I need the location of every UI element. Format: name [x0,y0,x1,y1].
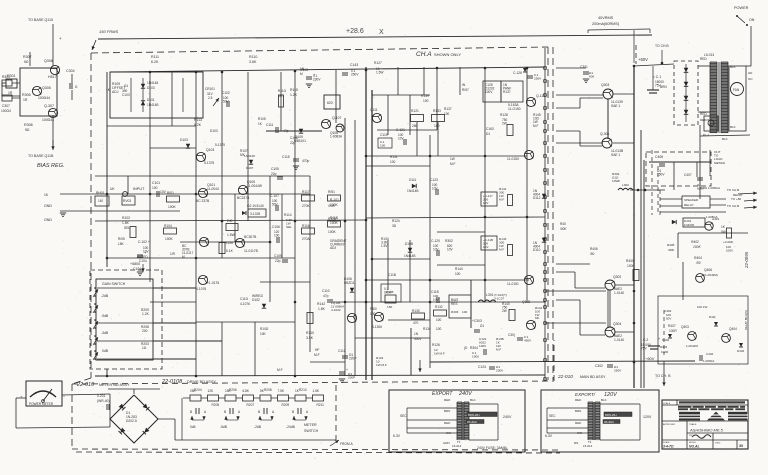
svg-text:100V: 100V [726,248,733,252]
svg-text:C111: C111 [266,123,274,127]
svg-text:R121: R121 [411,109,419,113]
svg-text:100K: 100K [627,264,636,268]
svg-text:Q403: Q403 [681,325,689,329]
svg-text:(1-0049M): (1-0049M) [704,273,718,277]
svg-text:POWER: POWER [734,6,749,10]
svg-text:G2 1V4140: G2 1V4140 [247,204,264,208]
svg-text:230V: 230V [313,78,321,82]
svg-text:100K: 100K [165,237,174,241]
svg-text:EXPORT/: EXPORT/ [575,392,596,397]
svg-text:-24dB: -24dB [286,425,296,429]
svg-text:WH-BLK: WH-BLK [604,420,614,424]
svg-text:10V: 10V [447,248,454,252]
svg-text:RED: RED [700,57,707,61]
svg-text:1W: 1W [450,157,455,161]
svg-text:D112: D112 [533,196,541,200]
svg-text:R126: R126 [432,343,440,347]
svg-text:470p: 470p [302,159,310,163]
svg-text:L301: L301 [486,293,494,297]
svg-text:R405: R405 [667,243,675,247]
svg-text:D101: D101 [147,98,155,102]
svg-text:R407: R407 [668,324,676,328]
svg-text:100K: 100K [328,230,337,234]
svg-text:RED: RED [444,421,451,425]
svg-text:BRN-WH: BRN-WH [605,413,617,417]
svg-text:10V: 10V [483,245,488,249]
svg-text:R132: R132 [435,305,443,309]
svg-text:HF: HF [315,348,319,352]
svg-text:220P: 220P [349,357,356,361]
svg-text:240V FUSE: 3AM6L: 240V FUSE: 3AM6L [477,446,508,450]
svg-text:WH-BLK: WH-BLK [467,420,477,424]
svg-text:R30/: R30/ [370,307,377,311]
svg-text:C304: C304 [66,69,75,73]
svg-text:Q11B: Q11B [522,300,531,304]
svg-text:1N4148: 1N4148 [244,154,255,158]
svg-text:R131: R131 [390,155,398,159]
svg-text:11-0044W: 11-0044W [247,184,263,188]
svg-text:R402: R402 [691,240,699,244]
svg-text:ASHISHIMO MK.5: ASHISHIMO MK.5 [689,428,724,433]
svg-text:C102: C102 [222,91,230,95]
svg-text:4-1076: 4-1076 [196,287,206,291]
svg-text:R110: R110 [249,55,257,59]
svg-text:R11Ω: R11Ω [278,89,287,93]
svg-text:RELAY BD A(S): RELAY BD A(S) [744,310,748,330]
svg-text:450V: 450V [524,339,532,343]
svg-text:Q-113: Q-113 [536,94,545,98]
svg-text:10V: 10V [433,298,439,302]
svg-text:1.8K: 1.8K [318,307,326,311]
svg-text:BLK: BLK [470,398,476,402]
svg-text:Q302: Q302 [613,275,621,279]
svg-text:10WF: 10WF [612,179,620,183]
svg-text:1000: 1000 [472,355,479,359]
svg-text:150: 150 [387,305,392,309]
svg-text:DRIVE BD ASSY.: DRIVE BD ASSY. [187,380,216,384]
svg-text:M.F: M.F [533,124,539,128]
svg-text:BRN-WH: BRN-WH [468,413,480,417]
svg-text:+60V: +60V [638,57,648,62]
svg-text:4-1076: 4-1076 [240,302,250,306]
svg-text:H517: H517 [48,75,57,79]
svg-text:B: B [292,410,294,414]
svg-text:RES: RES [451,302,458,306]
svg-text:100: 100 [434,124,440,128]
svg-text:EXPORT: EXPORT [432,391,453,397]
svg-text:50V: 50V [666,316,671,320]
svg-text:B: B [224,410,226,414]
svg-text:M: M [182,255,185,259]
svg-text:-9dB: -9dB [101,314,109,318]
svg-text:TO CH. B: TO CH. B [655,374,671,378]
svg-text:BIAS REG.: BIAS REG. [37,163,65,169]
svg-text:RED: RED [575,398,582,402]
svg-text:(WR-40): (WR-40) [97,399,109,403]
svg-text:250V: 250V [614,369,622,373]
svg-text:R130: R130 [412,309,420,313]
svg-text:DWG: DWG [715,443,721,445]
svg-text:22p: 22p [271,172,277,176]
svg-text:1N414B: 1N414B [404,254,416,258]
svg-text:D103: D103 [210,129,218,133]
svg-text:100V: 100V [485,90,493,94]
svg-text:Ω: Ω [75,85,78,89]
svg-text:R400: R400 [626,259,634,263]
svg-text:Ω1: Ω1 [124,84,128,88]
svg-text:A: A [709,122,711,126]
svg-text:R205: R205 [212,403,220,407]
svg-text:240V: 240V [503,415,512,419]
svg-text:250V: 250V [534,77,542,81]
svg-text:RELAY: RELAY [684,203,694,207]
svg-text:47p: 47p [323,294,329,298]
svg-text:100: 100 [380,144,385,148]
svg-text:HD: HD [748,71,753,75]
svg-text:6.2K: 6.2K [151,60,159,64]
svg-text:C143: C143 [350,63,358,67]
svg-text:C404: C404 [706,352,714,356]
svg-text:Ω1: Ω1 [486,132,490,136]
svg-text:R106: R106 [225,241,233,245]
svg-text:R134: R134 [423,327,431,331]
svg-text:Ω1: Ω1 [480,324,484,328]
svg-text:5Ω: 5Ω [24,60,29,64]
svg-text:22-0095: 22-0095 [744,251,749,269]
svg-text:1K: 1K [258,122,263,126]
svg-text:100R: 100R [661,350,669,354]
svg-text:+28.6: +28.6 [346,28,364,35]
svg-text:R308: R308 [24,123,33,127]
svg-text:FAN: FAN [733,88,740,92]
svg-text:4-1022: 4-1022 [331,308,341,312]
svg-text:1-0140: 1-0140 [614,291,624,295]
svg-text:5-1306: 5-1306 [372,325,382,329]
svg-text:TRADE: TRADE [689,423,697,426]
svg-text:3Ω: 3Ω [392,224,397,228]
svg-text:U5ZD1: U5ZD1 [344,281,355,285]
svg-text:SEC: SEC [400,414,407,418]
svg-text:X: X [379,29,384,36]
svg-text:R211: R211 [317,403,325,407]
svg-text:1-0083A: 1-0083A [330,135,343,139]
svg-text:SHOWN ONLY: SHOWN ONLY [434,52,461,57]
svg-text:≈ C.1: ≈ C.1 [653,75,661,79]
svg-text:BC307B: BC307B [244,235,257,239]
svg-text:270A: 270A [302,237,311,241]
svg-text:B: B [190,410,192,414]
svg-text:R304: R304 [470,346,478,350]
svg-text:RED: RED [575,421,582,425]
svg-text:Q305: Q305 [42,86,51,90]
svg-text:C103: C103 [122,93,130,97]
svg-text:M.F: M.F [450,162,456,166]
svg-text:R124: R124 [392,219,400,223]
svg-text:-3dB: -3dB [101,331,109,335]
svg-text:IN: IN [462,83,466,87]
svg-text:UK: UK [110,187,115,191]
svg-text:3.6K: 3.6K [249,60,257,64]
svg-text:+: + [59,36,62,41]
svg-text:M.F: M.F [499,198,504,202]
svg-text:C119: C119 [380,133,388,137]
svg-text:6.3V: 6.3V [393,434,401,438]
svg-text:A: A [238,410,241,414]
svg-text:GND: GND [44,218,52,222]
svg-text:C-120: C-120 [431,239,440,243]
svg-text:22-0108: 22-0108 [161,379,183,385]
svg-text:2.5: 2.5 [208,96,213,100]
svg-text:C-102 +: C-102 + [138,240,150,244]
svg-text:SEL: SEL [286,225,292,229]
svg-text:2W: 2W [502,309,507,313]
svg-text:C163: C163 [486,127,494,131]
svg-text:100K: 100K [330,221,339,225]
svg-text:100Ω44: 100Ω44 [38,96,50,100]
svg-text:1N4006: 1N4006 [684,223,695,227]
svg-text:SCALE: SCALE [663,402,671,405]
svg-text:100K: 100K [693,245,702,249]
svg-text:120V: 120V [643,415,652,419]
svg-text:A: A [306,410,309,414]
svg-text:M.F: M.F [314,353,320,357]
svg-text:-2dB: -2dB [254,425,262,429]
svg-text:RV03: RV03 [123,199,131,203]
svg-text:R303: R303 [451,310,459,314]
svg-text:Q406: Q406 [704,268,712,272]
svg-text:R115: R115 [290,88,298,92]
svg-text:BRN: BRN [444,409,450,413]
svg-text:1-0044M: 1-0044M [686,344,698,348]
svg-text:Q-107: Q-107 [332,116,342,120]
svg-text:1K: 1K [44,193,49,197]
svg-text:R/57: R/57 [462,88,469,92]
svg-text:GRN: GRN [443,441,450,445]
svg-text:12K: 12K [208,389,215,393]
svg-text:230V: 230V [496,369,504,373]
svg-text:7.5K: 7.5K [278,389,285,393]
svg-text:NO: NO [748,77,753,81]
svg-text:RH01: RH01 [96,191,105,195]
svg-text:22-010: 22-010 [557,374,573,380]
svg-text:150 FRMS: 150 FRMS [99,29,118,34]
svg-text:100: 100 [444,112,450,116]
svg-text:R304: R304 [2,75,10,79]
svg-text:6.8K: 6.8K [243,389,250,393]
svg-text:R209: R209 [282,403,290,407]
svg-text:R204: R204 [194,388,202,392]
svg-text:D107: D107 [246,166,254,170]
svg-text:R137: R137 [444,107,452,111]
svg-text:C30(: C30( [508,333,516,337]
svg-text:(D: (D [464,346,468,350]
svg-text:M.F: M.F [499,248,504,252]
svg-text:3-1025: 3-1025 [250,212,260,216]
svg-text:C302: C302 [595,364,603,368]
svg-text:M: M [300,72,303,76]
svg-text:1R: 1R [8,91,13,95]
svg-text:BRN: BRN [575,409,581,413]
svg-text:TO +80: TO +80 [731,197,741,201]
svg-text:SAE 1: SAE 1 [611,104,621,108]
svg-text:R108: R108 [386,290,394,294]
svg-text:D202-5: D202-5 [126,419,137,423]
svg-text:R113: R113 [194,118,202,122]
svg-text:0dB: 0dB [102,349,109,353]
svg-text:+1-0176: +1-0176 [207,281,219,285]
svg-text:RED: RED [700,112,707,116]
svg-text:C-107: C-107 [270,194,279,198]
svg-text:R403: R403 [660,345,668,349]
svg-text:100R: 100R [669,329,677,333]
svg-text:METER BD ASSY: METER BD ASSY [99,383,130,387]
svg-text:620: 620 [327,101,333,105]
svg-text:POWER METER: POWER METER [29,402,54,406]
svg-text:1N414B: 1N414B [147,103,159,107]
svg-text:1/R: 1/R [170,252,176,256]
svg-text:A: A [272,410,275,414]
svg-text:D402: D402 [662,338,670,342]
svg-text:R105: R105 [258,117,266,121]
svg-text:C115: C115 [282,155,290,159]
svg-text:−60V: −60V [645,356,655,361]
svg-text:A: A [204,410,207,414]
svg-text:11-G150: 11-G150 [508,107,521,111]
svg-text:RN: RN [574,441,578,445]
svg-text:100: 100 [390,160,396,164]
svg-text:MAIN BD ASSY: MAIN BD ASSY [580,375,606,379]
svg-text:R133: R133 [433,109,441,113]
svg-text:1-0140: 1-0140 [614,338,624,342]
svg-text:NO.AL: NO.AL [689,445,700,449]
svg-text:B: B [258,410,260,414]
svg-text:TO CH.B: TO CH.B [727,204,739,208]
svg-text:Q404: Q404 [729,327,737,331]
svg-text:Q303: Q303 [601,83,609,87]
svg-text:D110: D110 [533,248,541,252]
svg-text:CH.A: CH.A [416,51,432,58]
svg-text:+C303: +C303 [472,319,482,323]
svg-text:100K: 100K [330,203,339,207]
svg-text:+C403(: +C403( [723,240,734,244]
svg-text:100Ω44: 100Ω44 [42,118,54,122]
svg-text:22-010: 22-010 [76,382,95,388]
svg-text:100V: 100V [479,344,487,348]
svg-text:C401 1-008GA: C401 1-008GA [700,186,720,190]
svg-text:C11B: C11B [388,273,397,277]
svg-text:METER: METER [714,161,726,165]
svg-text:ADJ: ADJ [112,90,119,94]
svg-text:C108: C108 [290,136,298,140]
svg-text:R11B: R11B [330,216,339,220]
svg-text:FROM A: FROM A [340,442,353,446]
svg-text:100: 100 [436,318,442,322]
svg-text:3-4-7Ω: 3-4-7Ω [663,445,674,449]
svg-text:600: 600 [589,75,594,79]
svg-text:/00K: /00K [668,248,675,252]
svg-text:SPEAKER: SPEAKER [684,198,699,202]
svg-text:C124: C124 [478,365,486,369]
svg-text:1.8K: 1.8K [122,221,130,225]
svg-text:D103: D103 [180,138,188,142]
svg-text:3.5K: 3.5K [306,336,314,340]
svg-text:BLK: BLK [730,125,736,129]
svg-text:1W M.F: 1W M.F [434,352,445,356]
svg-text:R404: R404 [694,256,702,260]
svg-text:1-0060A: 1-0060A [703,359,714,363]
svg-text:C123: C123 [430,178,438,182]
svg-text:R111: R111 [151,55,159,59]
svg-text:4004: 4004 [414,337,421,341]
svg-text:R128: R128 [500,113,508,117]
svg-text:10V: 10V [160,190,167,194]
svg-text:L5-014: L5-014 [452,444,462,448]
svg-text:R116: R116 [302,224,310,228]
svg-text:L5-013: L5-013 [704,53,714,57]
svg-text:R/01: R/01 [167,191,174,195]
svg-text:1.2K: 1.2K [290,93,298,97]
svg-text:R104: R104 [164,224,172,228]
svg-text:0d5: 0d5 [190,425,196,429]
svg-text:M.F: M.F [277,368,283,372]
svg-text:PL-1: PL-1 [703,133,710,137]
svg-text:SEC: SEC [549,414,556,418]
svg-text:C-126: C-126 [513,71,522,75]
svg-text:100: 100 [462,310,467,314]
svg-text:/00K: /00K [560,227,567,231]
svg-text:R406: R406 [590,247,598,251]
svg-text:SWITCH: SWITCH [304,429,319,433]
svg-text:TO CH.B: TO CH.B [655,44,669,48]
svg-text:240V: 240V [458,391,473,397]
svg-text:R110: R110 [306,331,314,335]
svg-text:1.2K: 1.2K [142,312,150,316]
svg-text:R102: R102 [122,216,130,220]
svg-text:Q103: Q103 [206,148,214,152]
svg-text:200mA(60RMS): 200mA(60RMS) [592,22,620,26]
svg-text:11-0150: 11-0150 [507,157,519,161]
svg-text:22p: 22p [290,141,296,145]
svg-text:Q-307: Q-307 [44,104,54,108]
svg-text:CR101: CR101 [205,87,215,91]
svg-text:Q111: Q111 [370,108,378,112]
svg-text:R210: R210 [299,388,307,392]
svg-text:TO BASE Q11B: TO BASE Q11B [28,154,54,158]
svg-text:BC237B: BC237B [237,196,250,200]
svg-text:C407: C407 [684,173,692,177]
svg-text:TO CH.B: TO CH.B [727,188,739,192]
svg-text:C106: C106 [272,225,280,229]
svg-text:METER: METER [304,423,317,427]
svg-text:R302: R302 [445,239,453,243]
svg-text:GAIN SWITCH: GAIN SWITCH [102,282,126,286]
svg-text:L8K: L8K [118,242,125,246]
svg-text:470: 470 [413,321,419,325]
svg-text:40VRMS: 40VRMS [598,16,614,20]
svg-text:R/05: R/05 [118,237,125,241]
svg-text:R40: R40 [560,222,566,226]
svg-text:MF: MF [535,316,539,320]
svg-text:BLK: BLK [601,398,607,402]
svg-text:240: 240 [227,219,233,223]
svg-text:250V: 250V [351,73,359,77]
svg-text:C101: C101 [152,181,160,185]
svg-text:R114: R114 [284,213,292,217]
svg-text:R139: R139 [421,94,429,98]
svg-text:R206: R206 [229,388,237,392]
svg-text:R144: R144 [455,267,463,271]
svg-text:L302: L302 [622,183,629,187]
